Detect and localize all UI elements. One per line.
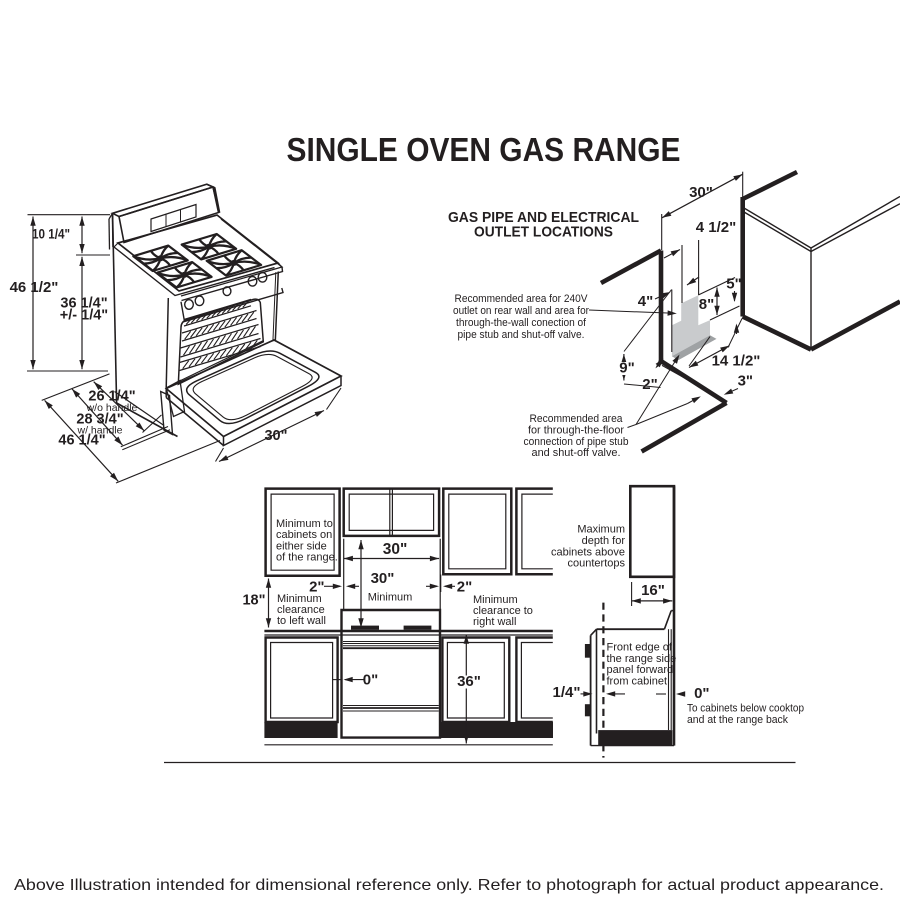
svg-text:0": 0" [363,672,378,689]
svg-text:36": 36" [457,673,481,690]
svg-text:16": 16" [641,582,665,599]
svg-text:right wall: right wall [473,616,516,628]
svg-text:Maximum: Maximum [577,524,625,536]
svg-text:the range side: the range side [607,653,677,665]
svg-text:depth for: depth for [582,535,626,547]
svg-text:pipe stub and shut-off valve.: pipe stub and shut-off valve. [458,329,585,341]
svg-text:1/4": 1/4" [553,684,581,701]
svg-text:Front edge of: Front edge of [607,642,673,654]
svg-text:Minimum to: Minimum to [276,518,333,530]
svg-text:2": 2" [642,376,657,393]
svg-text:SINGLE OVEN GAS RANGE: SINGLE OVEN GAS RANGE [287,131,681,168]
svg-text:from cabinet: from cabinet [607,675,668,687]
svg-text:countertops: countertops [568,558,626,570]
svg-text:14 1/2": 14 1/2" [712,353,761,370]
svg-text:30": 30" [689,184,713,201]
svg-text:for through-the-floor: for through-the-floor [528,424,624,436]
svg-text:and at the range back: and at the range back [687,714,788,726]
svg-text:4 1/2": 4 1/2" [696,219,736,236]
svg-text:0": 0" [694,685,709,702]
svg-text:+/- 1/4": +/- 1/4" [60,308,108,324]
svg-text:and shut-off valve.: and shut-off valve. [532,447,621,459]
svg-text:46 1/2": 46 1/2" [10,279,59,296]
svg-text:30": 30" [371,570,395,587]
svg-text:30": 30" [383,541,408,558]
svg-text:OUTLET LOCATIONS: OUTLET LOCATIONS [474,224,613,241]
svg-text:Recommended area: Recommended area [530,413,624,425]
svg-text:2": 2" [309,578,324,595]
svg-text:3": 3" [738,373,753,390]
svg-text:cabinets above: cabinets above [551,546,625,558]
svg-text:4": 4" [638,293,653,310]
svg-text:9": 9" [619,360,634,377]
svg-text:of the range.: of the range. [276,552,338,564]
svg-text:either side: either side [276,540,327,552]
svg-text:5": 5" [726,276,741,293]
svg-text:outlet on rear wall and area f: outlet on rear wall and area for [453,305,589,317]
svg-text:to left wall: to left wall [277,615,326,627]
svg-text:panel forward: panel forward [607,664,674,676]
svg-text:cabinets on: cabinets on [276,529,332,541]
svg-text:8": 8" [699,296,714,313]
svg-text:46 1/4": 46 1/4" [58,433,105,449]
svg-text:10 1/4": 10 1/4" [32,226,70,242]
svg-text:30": 30" [264,428,287,444]
svg-text:Above Illustration intended fo: Above Illustration intended for dimensio… [14,877,884,894]
svg-text:To cabinets below cooktop: To cabinets below cooktop [687,703,804,715]
svg-text:Recommended area for 240V: Recommended area for 240V [455,293,589,305]
svg-text:18": 18" [242,593,265,609]
svg-text:Minimum: Minimum [368,592,413,604]
svg-text:2": 2" [457,578,472,595]
svg-text:through-the-wall conection of: through-the-wall conection of [456,317,587,329]
svg-text:connection of pipe stub: connection of pipe stub [524,436,629,448]
